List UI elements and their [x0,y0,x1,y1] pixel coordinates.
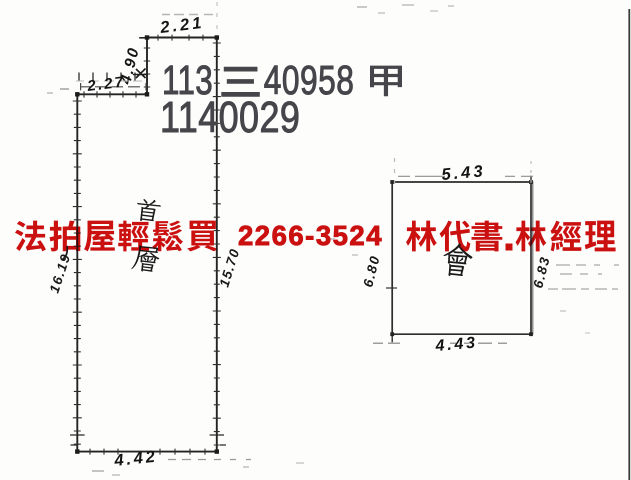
svg-text:16.19: 16.19 [47,251,74,294]
svg-text:2.21: 2.21 [158,14,205,37]
svg-text:2266-3524: 2266-3524 [238,220,383,251]
svg-text:6.83: 6.83 [530,254,552,289]
svg-text:2.27: 2.27 [85,73,126,95]
svg-text:1140029: 1140029 [160,94,300,142]
svg-text:15.70: 15.70 [217,246,243,288]
svg-text:6.80: 6.80 [360,253,382,288]
svg-text:4.42: 4.42 [113,448,159,471]
svg-text:4.43: 4.43 [434,334,479,355]
svg-text:5.43: 5.43 [441,162,487,184]
